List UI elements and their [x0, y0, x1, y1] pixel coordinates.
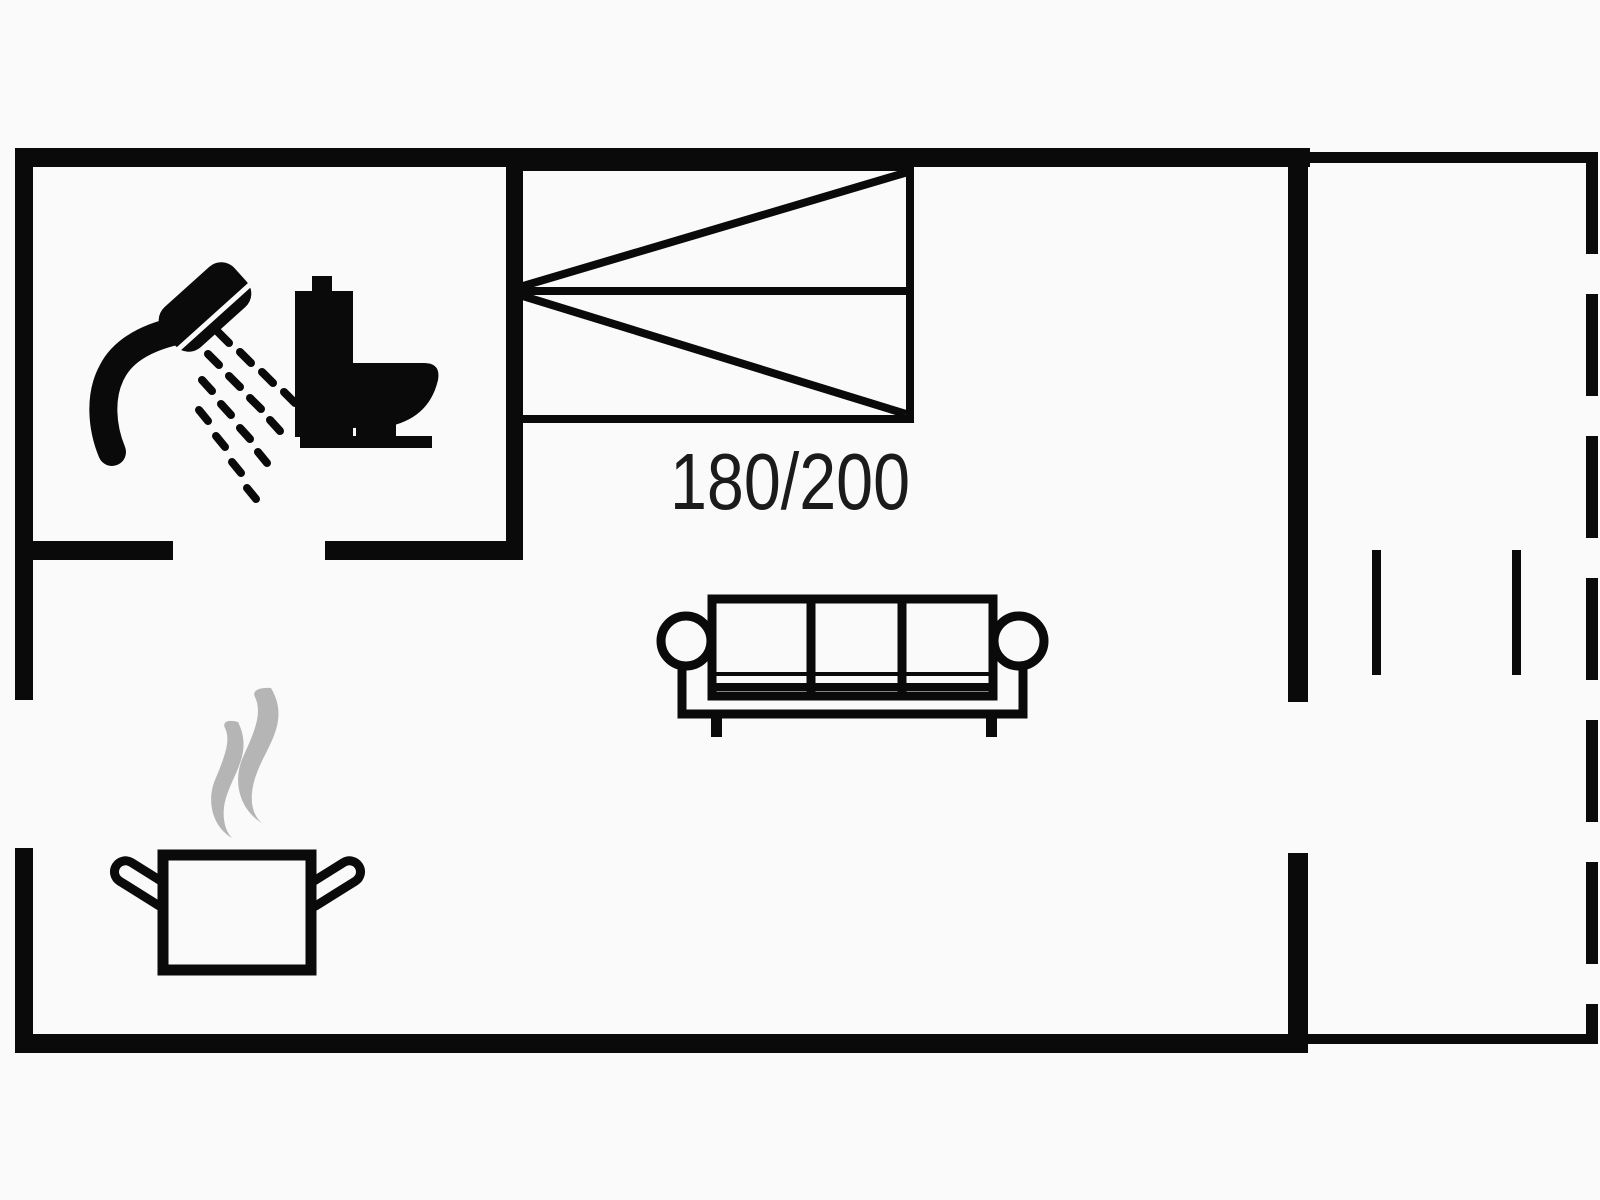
terrace-tick-right: [1512, 550, 1521, 675]
floor-plan-drawing: 180/200: [0, 0, 1600, 1200]
water-drop: [208, 354, 219, 365]
water-drop: [229, 376, 240, 387]
toilet-bowl: [353, 363, 438, 428]
toilet-flush-knob: [312, 276, 332, 293]
double-bed-icon: [513, 167, 910, 419]
cooking-pot-icon: [110, 688, 364, 970]
toilet-tank: [295, 291, 353, 437]
wall-bathroom-south-right: [325, 541, 523, 560]
water-drop: [284, 392, 295, 403]
pot-body: [163, 855, 311, 970]
terrace-tick-left: [1372, 550, 1381, 675]
water-drop: [232, 462, 241, 473]
water-drop: [202, 380, 212, 391]
terrace: [1308, 152, 1596, 1044]
water-spray: [199, 332, 295, 499]
shower-icon: [103, 255, 295, 499]
wall-bottom: [15, 1034, 1308, 1053]
toilet-pedestal: [356, 424, 396, 438]
bed-size-label: 180/200: [670, 437, 910, 526]
water-drop: [258, 452, 267, 463]
water-drop: [262, 372, 273, 383]
toilet-foot: [300, 436, 432, 448]
wall-bathroom-south-left: [15, 541, 173, 560]
sofa-leg-left: [711, 714, 722, 737]
water-drop: [240, 352, 251, 363]
water-drop: [221, 404, 231, 415]
bed-diagonal-upper: [513, 172, 908, 289]
sofa-arm-left: [661, 616, 711, 666]
wall-right-lower: [1288, 853, 1308, 1053]
terrace-bottom-line: [1308, 1034, 1596, 1044]
wall-left-lower: [15, 848, 33, 1053]
water-drop: [218, 332, 229, 343]
wall-left-upper: [15, 148, 33, 700]
water-drop: [199, 410, 208, 421]
toilet-icon: [295, 276, 438, 448]
sofa-cushions: [712, 599, 993, 696]
water-drop: [216, 436, 225, 447]
steam-icon: [238, 688, 278, 823]
floor-plan: 180/200: [0, 0, 1600, 1200]
sofa-leg-right: [986, 714, 997, 737]
wall-right-upper: [1288, 148, 1308, 702]
water-drop: [270, 420, 280, 431]
water-drop: [250, 398, 261, 409]
sofa-arm-right: [994, 616, 1044, 666]
shower-handle: [103, 330, 180, 452]
bed-diagonal-lower: [513, 293, 906, 414]
sofa-icon: [661, 599, 1044, 737]
terrace-top-line: [1308, 152, 1596, 163]
water-drop: [247, 488, 256, 499]
water-drop: [240, 428, 250, 439]
